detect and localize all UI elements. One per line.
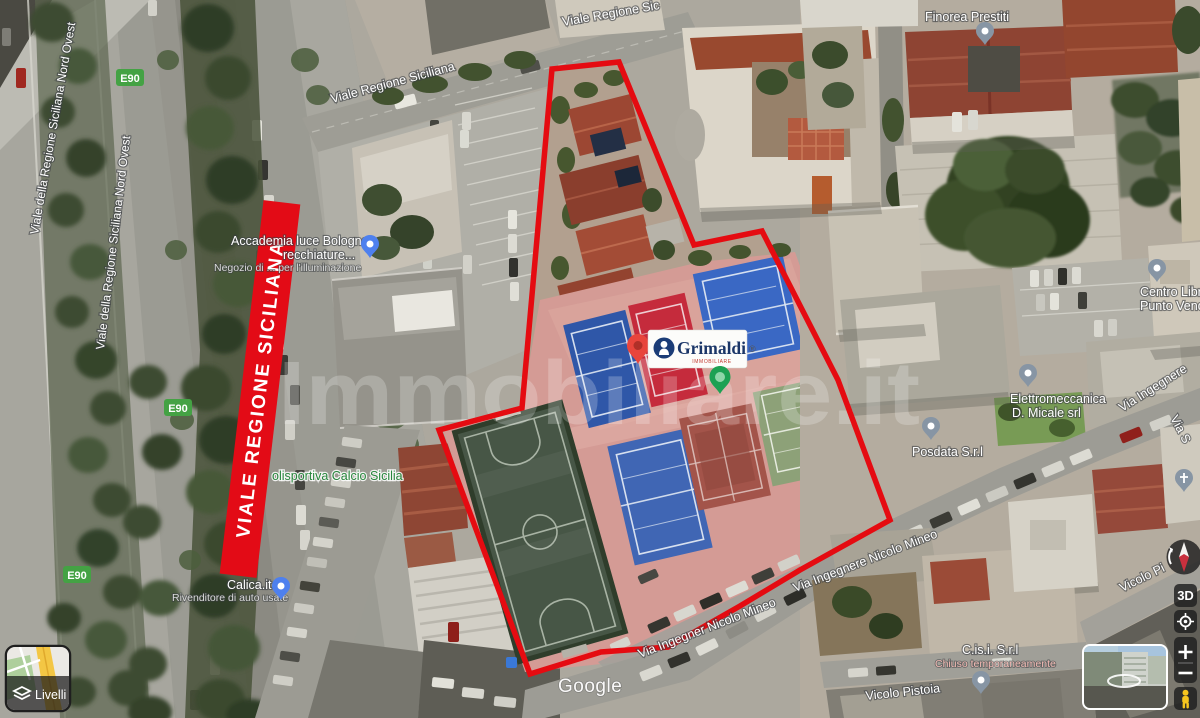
svg-text:recchiature...: recchiature... (283, 248, 355, 262)
svg-text:Livelli: Livelli (35, 688, 66, 702)
svg-text:Posdata S.r.l: Posdata S.r.l (912, 445, 983, 459)
svg-text:IMMOBILIARE: IMMOBILIARE (692, 359, 731, 365)
svg-text:Negozio di ... per l'illuminaz: Negozio di ... per l'illuminazione (214, 262, 361, 274)
svg-text:C.is.i. S.r.l: C.is.i. S.r.l (962, 643, 1018, 657)
svg-text:3D: 3D (1177, 588, 1194, 603)
svg-text:Grimaldi: Grimaldi (677, 338, 746, 358)
svg-text:D. Micale srl: D. Micale srl (1012, 406, 1081, 420)
svg-text:E90: E90 (67, 570, 87, 582)
svg-text:Calica.it: Calica.it (227, 578, 272, 592)
svg-text:Elettromeccanica: Elettromeccanica (1010, 392, 1106, 406)
svg-text:Rivenditore di auto usate: Rivenditore di auto usate (172, 592, 288, 604)
svg-text:Chiuso temporaneamente: Chiuso temporaneamente (935, 658, 1056, 670)
svg-text:E90: E90 (168, 403, 188, 415)
svg-text:olisportiva Calcio Sicilia: olisportiva Calcio Sicilia (272, 469, 403, 483)
svg-text:Immobiliare.it: Immobiliare.it (278, 344, 920, 444)
svg-text:Accademia luce Bologna: Accademia luce Bologna (231, 234, 369, 248)
svg-text:E90: E90 (120, 73, 140, 85)
svg-text:Punto Vend: Punto Vend (1140, 299, 1200, 313)
svg-text:Centro Libr: Centro Libr (1140, 285, 1200, 299)
svg-text:Finorea Prestiti: Finorea Prestiti (925, 10, 1009, 24)
svg-text:Google: Google (558, 676, 622, 697)
svg-text:®: ® (749, 344, 756, 354)
